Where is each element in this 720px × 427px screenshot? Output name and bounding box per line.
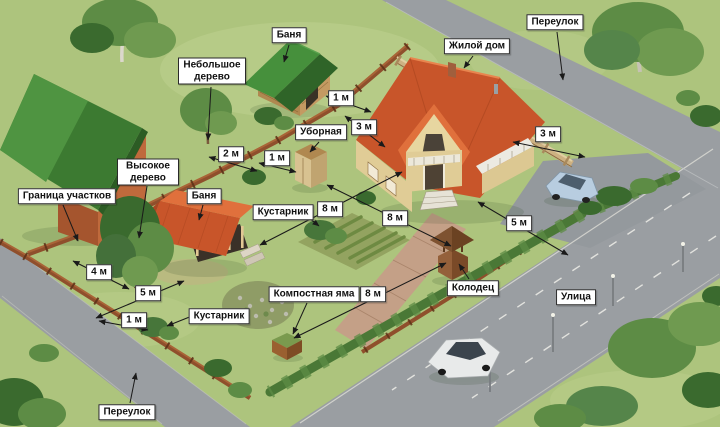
label-outhouse: Уборная — [295, 124, 347, 140]
distance-banya-fence: 1 м — [328, 90, 354, 106]
distance-outhouse-well: 8 м — [382, 210, 408, 226]
distance-house-lane: 3 м — [535, 126, 561, 142]
label-shrub-upper: Кустарник — [253, 204, 314, 220]
label-small-tree: Небольшое дерево — [178, 58, 246, 85]
label-shrub-lower: Кустарник — [189, 308, 250, 324]
distance-compost-well: 8 м — [360, 286, 386, 302]
distance-fence-outhouse: 1 м — [264, 150, 290, 166]
site-plan-infographic: Баня Небольшое дерево Жилой дом Переулок… — [0, 0, 720, 427]
distance-talltree-fence: 4 м — [86, 264, 112, 280]
label-dwelling-house: Жилой дом — [444, 38, 510, 54]
label-lane-bottom: Переулок — [98, 404, 155, 420]
label-lane-top: Переулок — [526, 14, 583, 30]
distance-house-street: 5 м — [506, 215, 532, 231]
label-compost-pit: Компостная яма — [269, 286, 360, 302]
label-tall-tree: Высокое дерево — [117, 159, 179, 186]
distance-shrub-fence: 1 м — [121, 312, 147, 328]
label-banya-neighbor: Баня — [272, 27, 307, 43]
label-well: Колодец — [447, 280, 499, 296]
distance-tree-fence: 2 м — [218, 146, 244, 162]
distance-banya-lane: 5 м — [135, 285, 161, 301]
distance-banya-house: 8 м — [317, 201, 343, 217]
distance-fence-house: 3 м — [351, 119, 377, 135]
site-plan-illustration — [0, 0, 720, 427]
label-plot-boundary: Граница участков — [18, 188, 116, 204]
label-banya-left: Баня — [187, 188, 222, 204]
label-street: Улица — [556, 289, 596, 305]
